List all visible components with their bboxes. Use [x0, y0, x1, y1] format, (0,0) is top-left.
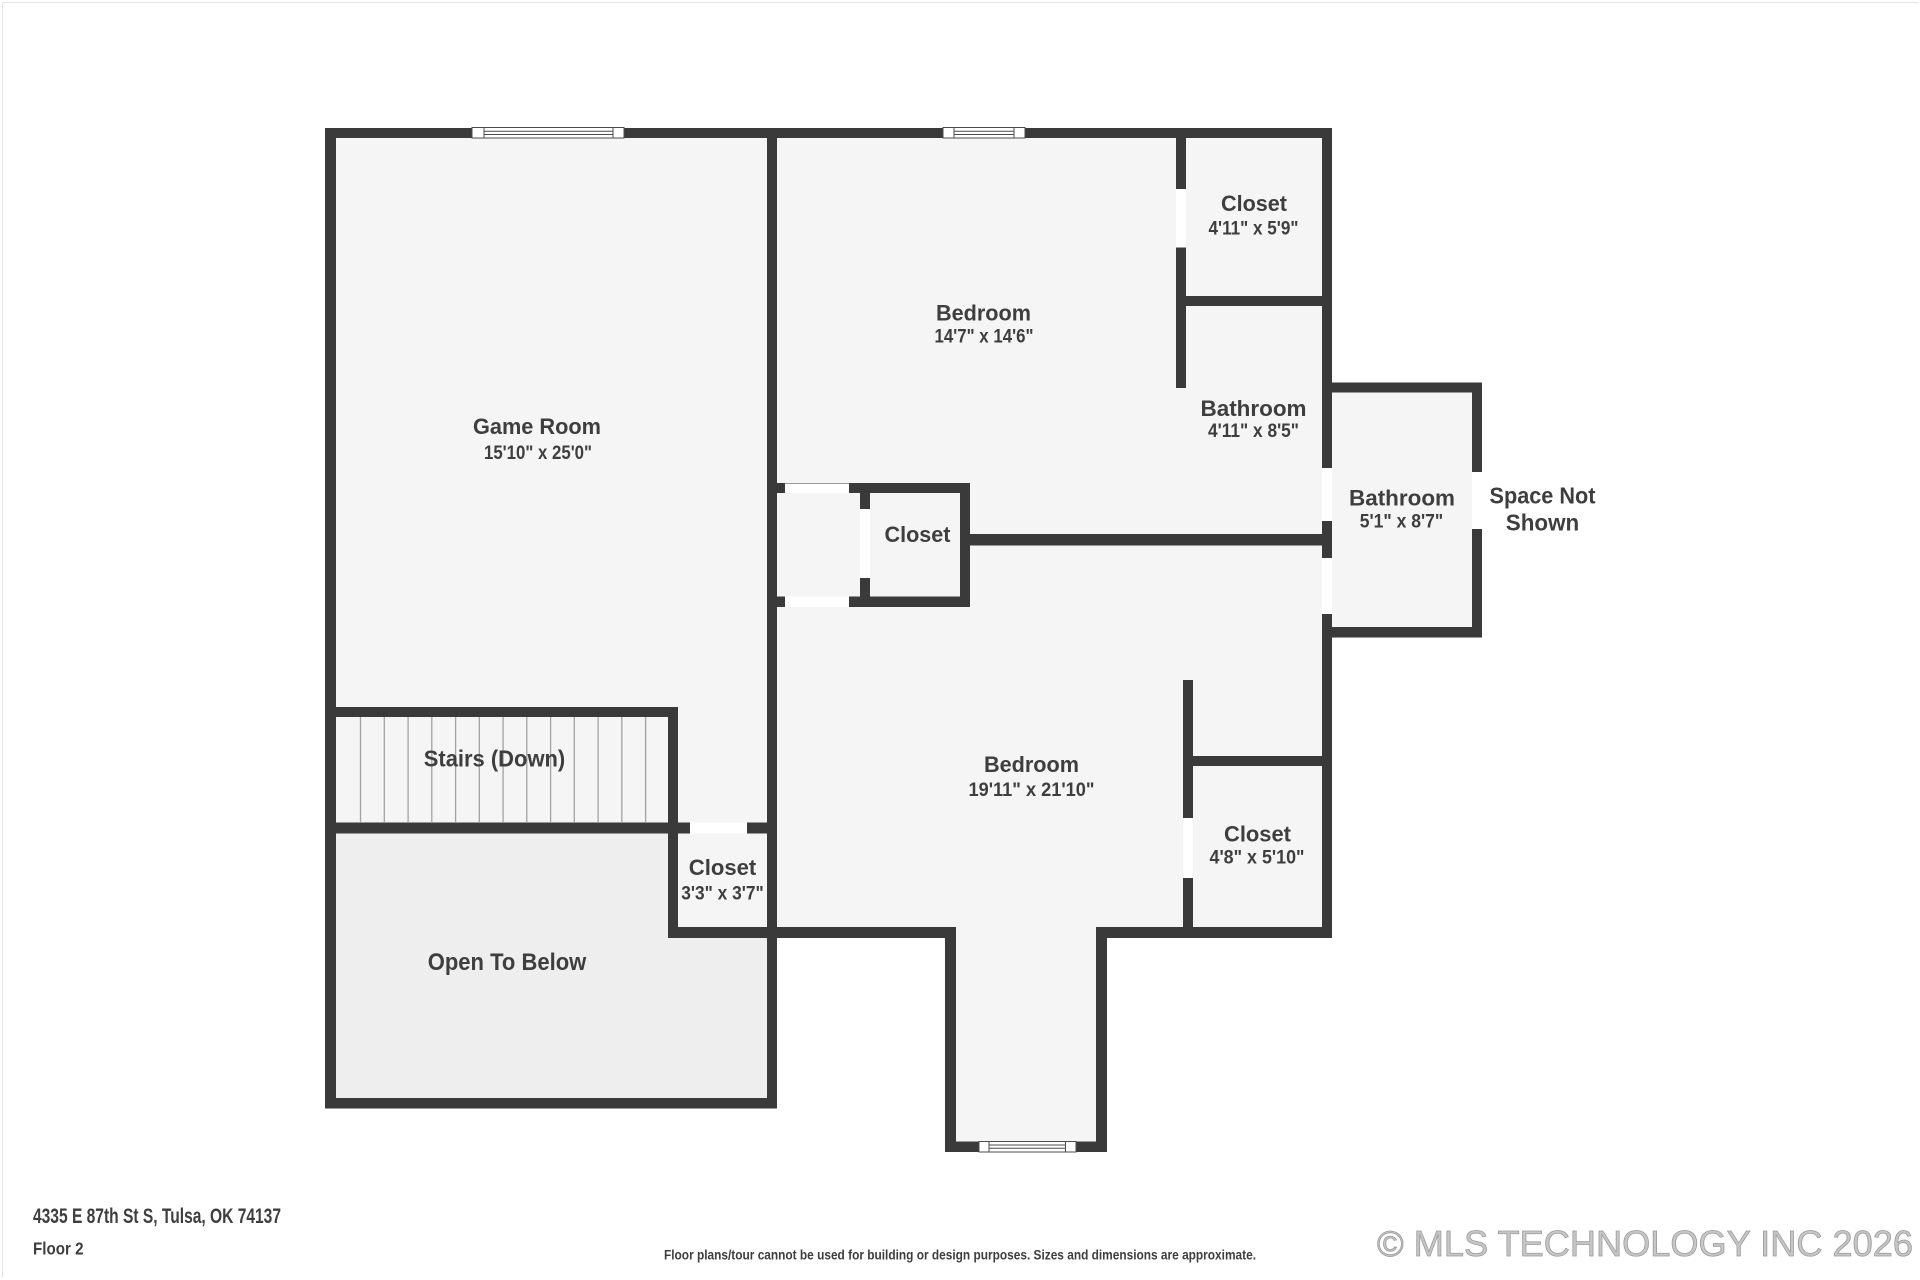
- svg-text:Bedroom: Bedroom: [984, 752, 1079, 777]
- svg-text:14'7" x 14'6": 14'7" x 14'6": [935, 327, 1034, 348]
- svg-text:4'8" x 5'10": 4'8" x 5'10": [1210, 848, 1305, 869]
- svg-text:Closet: Closet: [1221, 191, 1288, 216]
- svg-text:Game Room: Game Room: [473, 414, 601, 439]
- svg-text:Closet: Closet: [1224, 822, 1292, 847]
- svg-text:4'11" x 5'9": 4'11" x 5'9": [1209, 219, 1299, 240]
- svg-text:Space Not: Space Not: [1490, 483, 1596, 509]
- svg-text:4335 E 87th St S, Tulsa, OK 74: 4335 E 87th St S, Tulsa, OK 74137: [33, 1204, 281, 1228]
- svg-text:Closet: Closet: [689, 855, 757, 880]
- svg-text:Bedroom: Bedroom: [936, 301, 1031, 326]
- svg-text:Bathroom: Bathroom: [1349, 486, 1455, 511]
- svg-text:15'10" x 25'0": 15'10" x 25'0": [484, 443, 592, 464]
- svg-text:5'1" x 8'7": 5'1" x 8'7": [1360, 512, 1444, 533]
- svg-text:© MLS TECHNOLOGY INC 2026: © MLS TECHNOLOGY INC 2026: [1377, 1223, 1913, 1264]
- svg-text:Bathroom: Bathroom: [1201, 396, 1307, 421]
- svg-text:3'3" x 3'7": 3'3" x 3'7": [681, 884, 764, 905]
- svg-text:19'11" x 21'10": 19'11" x 21'10": [969, 780, 1095, 801]
- svg-text:Shown: Shown: [1506, 510, 1580, 536]
- svg-text:Stairs (Down): Stairs (Down): [424, 746, 566, 772]
- svg-text:Floor 2: Floor 2: [33, 1239, 84, 1259]
- svg-text:Closet: Closet: [885, 522, 952, 547]
- svg-text:Floor plans/tour cannot be use: Floor plans/tour cannot be used for buil…: [664, 1247, 1256, 1263]
- svg-text:Open To Below: Open To Below: [428, 949, 587, 976]
- svg-text:4'11" x 8'5": 4'11" x 8'5": [1208, 421, 1299, 442]
